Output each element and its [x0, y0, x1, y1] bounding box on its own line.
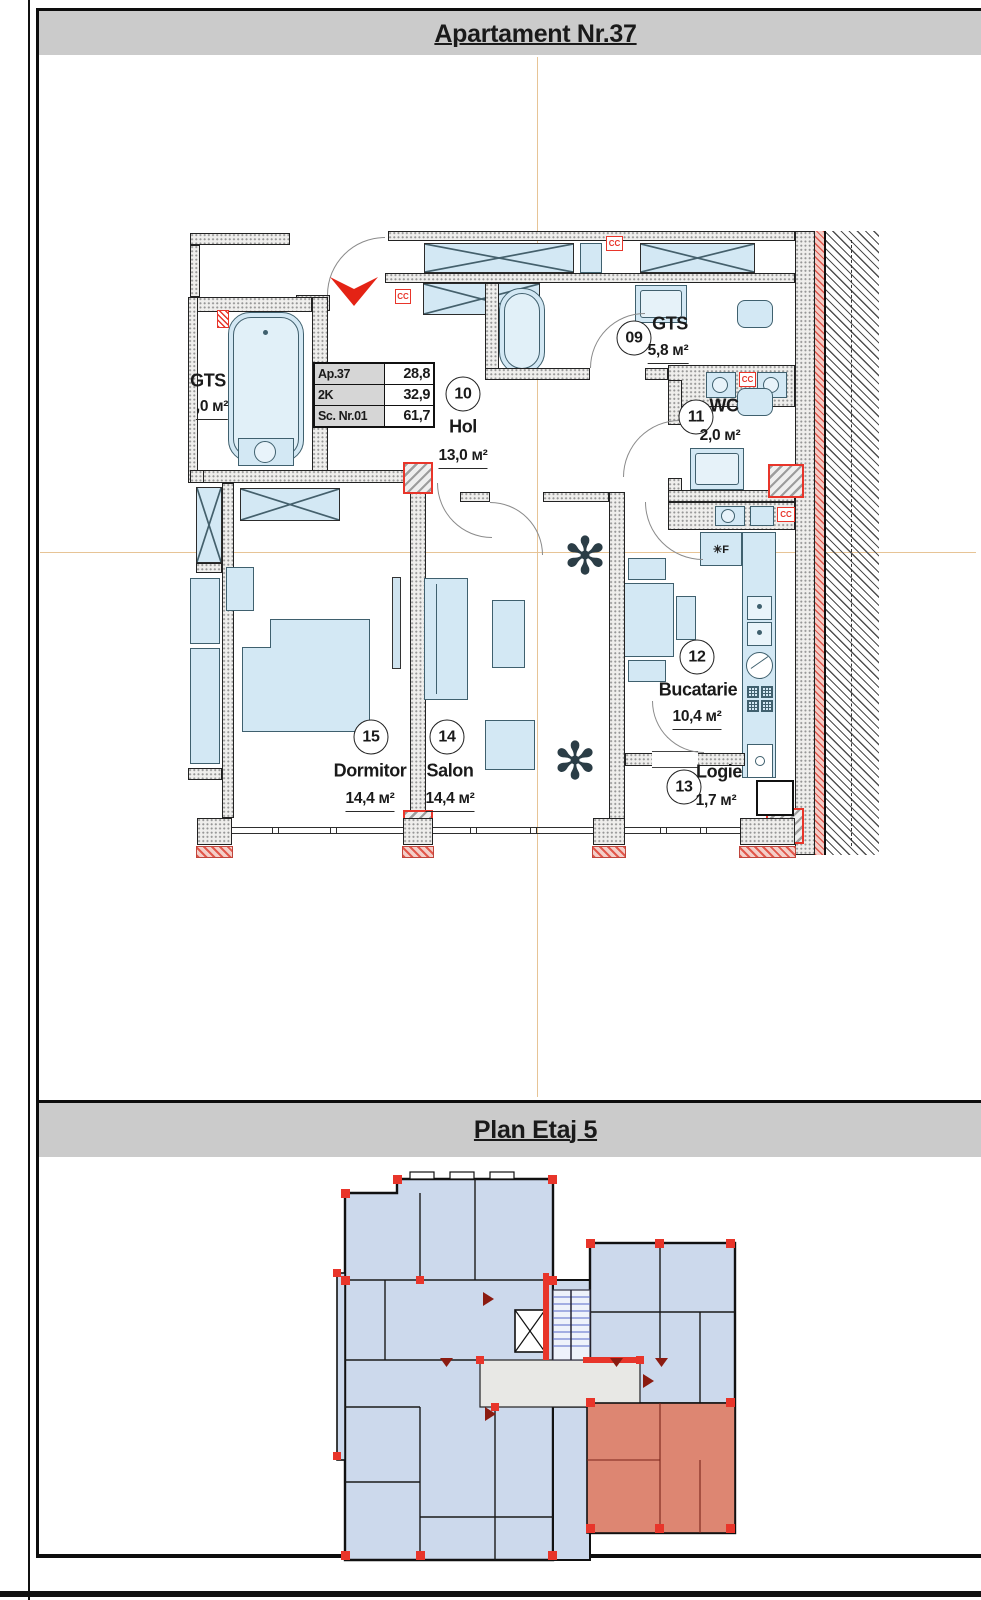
closet-xbox	[640, 243, 755, 273]
plant-icon: ✻	[563, 531, 607, 583]
faucet-dot	[263, 330, 268, 335]
stove-burner	[761, 700, 773, 712]
logie-box	[756, 780, 794, 816]
apartment-title-bar: Apartament Nr.37	[36, 8, 981, 61]
info-label: Sc. Nr.01	[315, 406, 385, 426]
info-value: 32,9	[385, 385, 433, 405]
room-name: Dormitor	[334, 761, 407, 782]
neighbor-furniture	[190, 578, 220, 644]
room-number-badge: 12	[680, 640, 715, 675]
top-outer-wall	[388, 231, 795, 241]
window-mullion	[272, 827, 279, 834]
insulation-strip	[403, 847, 433, 857]
logie-threshold	[652, 751, 698, 768]
neighbor-wall	[190, 233, 290, 245]
bottom-pier	[197, 818, 232, 845]
room-name: Logie	[696, 762, 742, 783]
armchair	[485, 720, 535, 770]
tv-unit	[392, 577, 401, 669]
room-area: 1,7 м²	[696, 792, 737, 810]
column-marker	[768, 464, 804, 498]
room-area: 14,4 м²	[345, 790, 394, 812]
shaft-cc-label: CC	[739, 372, 756, 387]
room-area: 13,0 м²	[438, 447, 487, 469]
room-name: Hol	[449, 417, 477, 438]
floor-title-bar: Plan Etaj 5	[36, 1100, 981, 1160]
shaft-box	[750, 506, 774, 526]
drawing-sheet: Apartament Nr.37 Plan Etaj 5 CC CC	[0, 0, 981, 1600]
dining-table	[618, 583, 674, 657]
dormitor-top-wall	[203, 470, 408, 483]
info-value: 61,7	[385, 406, 433, 426]
exterior-insulation-strip	[815, 231, 824, 855]
neighbor-room-name: GTS	[190, 371, 226, 392]
table-row: Ap.37 28,8	[315, 364, 433, 385]
apartment-title: Apartament Nr.37	[386, 20, 636, 49]
insulation-strip	[197, 847, 232, 857]
room-name: WC	[709, 396, 738, 417]
sheet-frame-left-line	[28, 0, 30, 1600]
gts09-bottom-wall	[645, 368, 668, 380]
window	[433, 827, 593, 834]
fixture-box	[580, 243, 602, 273]
boiler-circle	[746, 652, 773, 679]
neighbor-wall	[188, 768, 222, 780]
stove-burner	[761, 686, 773, 698]
shaft-cc-label: CC	[777, 507, 795, 522]
room-number-badge: 15	[354, 720, 389, 755]
gts09-left-wall	[485, 283, 499, 380]
window	[232, 827, 403, 834]
nightstand	[226, 567, 254, 611]
table-row: 2K 32,9	[315, 385, 433, 406]
room-number-badge: 14	[430, 720, 465, 755]
stove-burner	[747, 700, 759, 712]
room-number-badge: 09	[617, 321, 652, 356]
window-mullion	[530, 827, 537, 834]
table-row: Sc. Nr.01 61,7	[315, 406, 433, 426]
bottom-pier	[593, 818, 625, 845]
sink-drain-dot	[757, 604, 762, 609]
bottom-pier	[403, 818, 433, 845]
neighbor-gts-top-wall	[190, 297, 312, 312]
dormitor-closet-xbox	[240, 488, 340, 521]
dining-chair	[676, 596, 696, 640]
salon-top-wall	[543, 492, 609, 502]
toilet	[737, 388, 773, 416]
exterior-right-wall	[795, 231, 815, 855]
dining-chair	[628, 558, 666, 580]
entrance-arrow-icon	[329, 276, 379, 308]
sofa-line	[436, 584, 437, 694]
sink-drain-dot	[757, 630, 762, 635]
floor-overview-plan	[325, 1152, 745, 1564]
washbasin	[690, 448, 744, 490]
washing-machine-drum	[254, 441, 276, 463]
bed-pillow-fold	[242, 619, 271, 648]
salon-kitchen-wall	[609, 492, 625, 845]
shaft-red-mark	[217, 310, 229, 328]
apartment-info-table: Ap.37 28,8 2K 32,9 Sc. Nr.01 61,7	[313, 362, 435, 428]
sheet-frame-bottom-line	[0, 1591, 981, 1597]
room-area: 2,0 м²	[700, 427, 741, 445]
neighbor-furniture	[190, 648, 220, 764]
sofa	[424, 578, 468, 700]
bottom-pier	[740, 818, 795, 845]
floor-title: Plan Etaj 5	[426, 1116, 597, 1145]
window-mullion	[470, 827, 477, 834]
coffee-table	[492, 600, 525, 668]
window-mullion	[660, 827, 667, 834]
centerline-vertical	[537, 57, 538, 1097]
neighbor-closet-xbox	[196, 487, 222, 563]
shaft-circle	[712, 377, 728, 393]
shaft-circle	[721, 509, 735, 523]
dormitor-left-wall	[222, 483, 234, 818]
neighbor-wall	[196, 563, 222, 573]
shaft-cc-label: CC	[395, 289, 411, 304]
window-mullion	[330, 827, 337, 834]
shaft-cc-label: CC	[606, 236, 623, 251]
room-name: GTS	[652, 314, 688, 335]
insulation-strip	[740, 847, 795, 857]
bathtub	[499, 288, 545, 374]
entrance-wall	[385, 273, 795, 283]
exterior-dashed-line	[851, 240, 853, 846]
room-area: 10,4 м²	[672, 708, 721, 730]
insulation-strip	[593, 847, 625, 857]
room-name: Salon	[426, 761, 473, 782]
room-area: 5,8 м²	[648, 342, 689, 364]
column-marker	[403, 462, 433, 494]
fridge-symbol: ✳F	[700, 532, 742, 566]
cabinet-knob	[755, 756, 765, 766]
toilet	[737, 300, 773, 328]
room-name: Bucatarie	[659, 680, 737, 701]
closet-xbox	[424, 243, 574, 273]
stove-burner	[747, 686, 759, 698]
neighbor-room-area: ,0 м²	[196, 398, 228, 420]
window-mullion	[700, 827, 707, 834]
gts09-bottom-wall	[485, 368, 590, 380]
room-number-badge: 10	[446, 377, 481, 412]
plant-icon: ✻	[553, 736, 597, 788]
info-value: 28,8	[385, 364, 433, 384]
info-label: Ap.37	[315, 364, 385, 384]
room-area: 14,4 м²	[425, 790, 474, 812]
window	[625, 827, 740, 834]
info-label: 2K	[315, 385, 385, 405]
neighbor-wall	[190, 245, 200, 297]
